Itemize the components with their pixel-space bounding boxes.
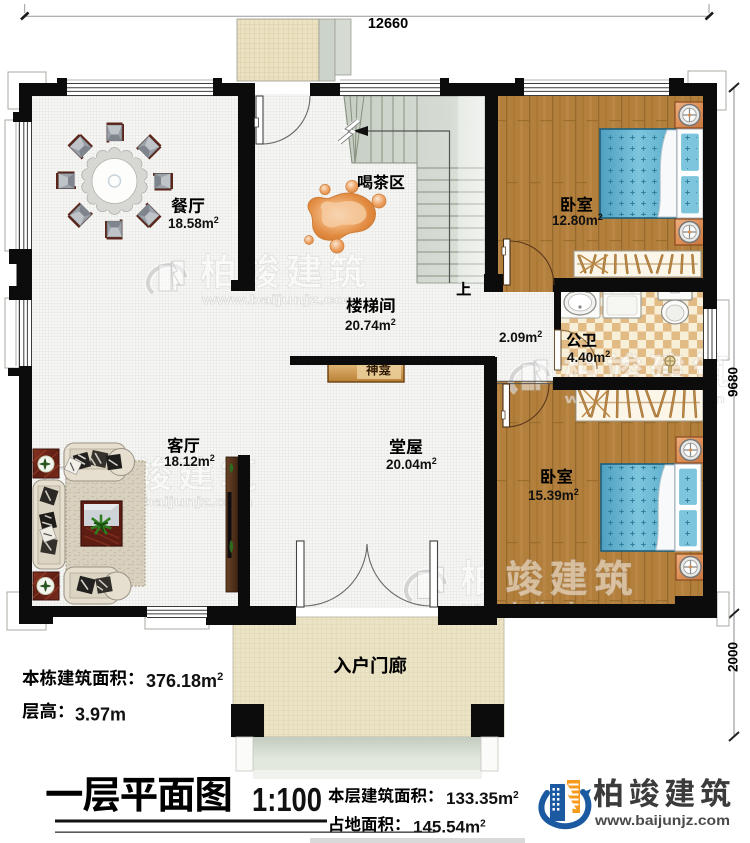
svg-text:www.baijunjz.com: www.baijunjz.com	[594, 812, 730, 828]
svg-text:376.18m2: 376.18m2	[146, 671, 223, 691]
svg-text:4.40m2: 4.40m2	[567, 349, 610, 365]
svg-text:20.04m2: 20.04m2	[386, 456, 437, 472]
svg-text:2.09m2: 2.09m2	[499, 329, 542, 345]
svg-text:145.54m2: 145.54m2	[413, 818, 486, 837]
svg-text:15.39m2: 15.39m2	[528, 487, 579, 503]
svg-text:12660: 12660	[368, 16, 408, 32]
svg-text:1:100: 1:100	[252, 781, 322, 818]
svg-text:www.baijunjz.com: www.baijunjz.com	[201, 292, 362, 307]
svg-text:20.74m2: 20.74m2	[345, 317, 396, 333]
svg-text:2000: 2000	[726, 642, 741, 672]
svg-text:133.35m2: 133.35m2	[446, 789, 519, 808]
svg-text:3.97m: 3.97m	[75, 705, 126, 725]
svg-text:18.12m2: 18.12m2	[164, 453, 215, 469]
svg-text:18.58m2: 18.58m2	[168, 215, 219, 231]
svg-text:12.80m2: 12.80m2	[552, 212, 603, 228]
